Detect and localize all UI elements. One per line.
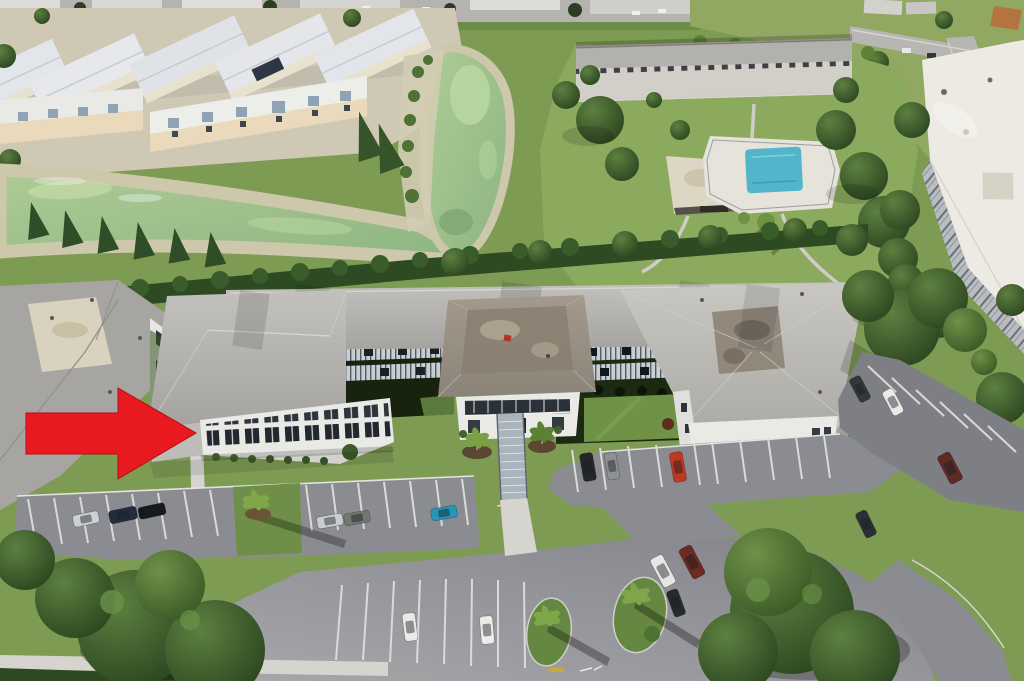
car-white <box>479 615 494 644</box>
pool <box>745 147 803 194</box>
roof-red-object <box>504 335 512 342</box>
neighbor-condo-north <box>576 34 852 102</box>
yellow-curb <box>548 668 564 673</box>
house-orange-roof <box>990 6 1022 30</box>
maroon-bush <box>662 418 674 430</box>
aerial-photo <box>0 0 1024 681</box>
clubhouse-doorway <box>700 206 728 212</box>
entrance-canopy <box>497 413 527 500</box>
